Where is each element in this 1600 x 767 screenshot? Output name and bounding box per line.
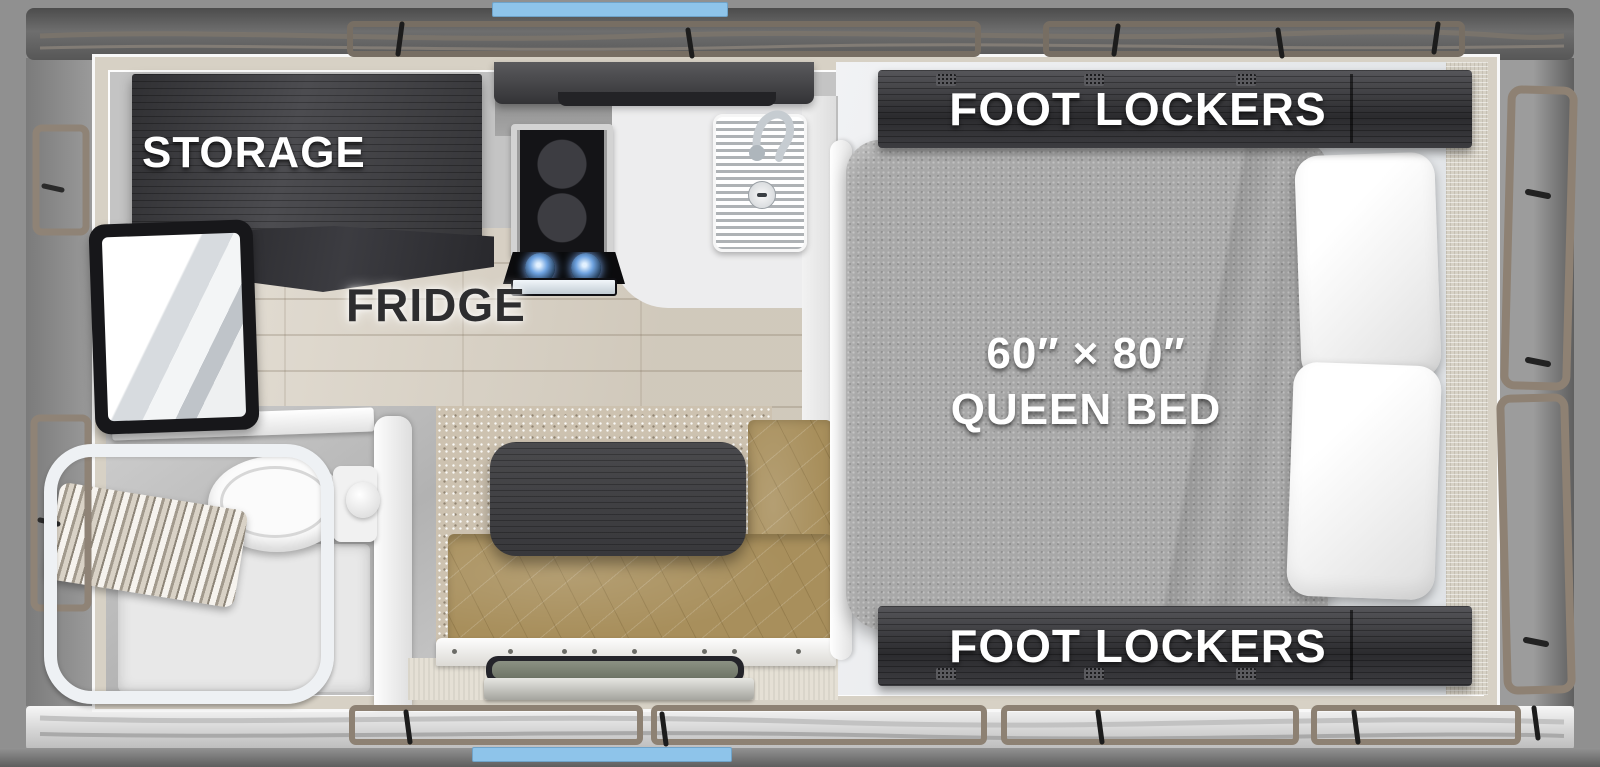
bathroom-divider-wall	[374, 416, 412, 708]
kitchen-sink	[713, 114, 807, 252]
bed-wall-weave-band	[1446, 62, 1488, 695]
cushion-button	[796, 649, 801, 654]
drain-slot	[757, 193, 767, 197]
exterior-wall-right	[1500, 58, 1574, 706]
cushion-button	[732, 649, 737, 654]
bed-type-label: QUEEN BED	[850, 382, 1322, 438]
foot-locker-top: FOOT LOCKERS	[878, 70, 1472, 148]
camper-floorplan: FOOT LOCKERS FOOT LOCKERS STORAGE FRIDGE…	[0, 0, 1600, 767]
cushion-button	[592, 649, 597, 654]
cushion-button	[632, 649, 637, 654]
shower-curtain-rod	[44, 444, 334, 704]
stove-glass-shelf	[511, 278, 617, 296]
clearance-light-bottom	[472, 747, 732, 762]
storage-label: STORAGE	[142, 128, 366, 178]
dinette-table	[490, 442, 746, 556]
cooktop-stove	[511, 124, 613, 258]
tv	[88, 219, 259, 435]
entry-threshold	[484, 678, 754, 700]
overhead-cabinet	[494, 62, 814, 104]
clearance-light-top	[492, 2, 728, 17]
range-hood-lip	[558, 92, 776, 106]
sink-drain	[748, 181, 776, 209]
foot-lockers-top-label: FOOT LOCKERS	[878, 82, 1398, 136]
fridge-label: FRIDGE	[346, 278, 526, 332]
bed-label: 60″ × 80″ QUEEN BED	[850, 326, 1322, 439]
foot-lockers-bottom-label: FOOT LOCKERS	[878, 619, 1398, 673]
entry-step-glass	[492, 661, 738, 679]
exterior-trim-band-bottom	[26, 706, 1574, 750]
bed-size-label: 60″ × 80″	[850, 326, 1322, 382]
exterior-trim-band-top	[26, 8, 1574, 60]
foot-locker-bottom: FOOT LOCKERS	[878, 606, 1472, 686]
cushion-button	[452, 649, 457, 654]
bath-sink-bowl	[346, 482, 380, 518]
tv-screen	[102, 233, 246, 422]
cushion-button	[508, 649, 513, 654]
cushion-button	[562, 649, 567, 654]
rear-bumper	[0, 748, 1600, 767]
cushion-button	[702, 649, 707, 654]
